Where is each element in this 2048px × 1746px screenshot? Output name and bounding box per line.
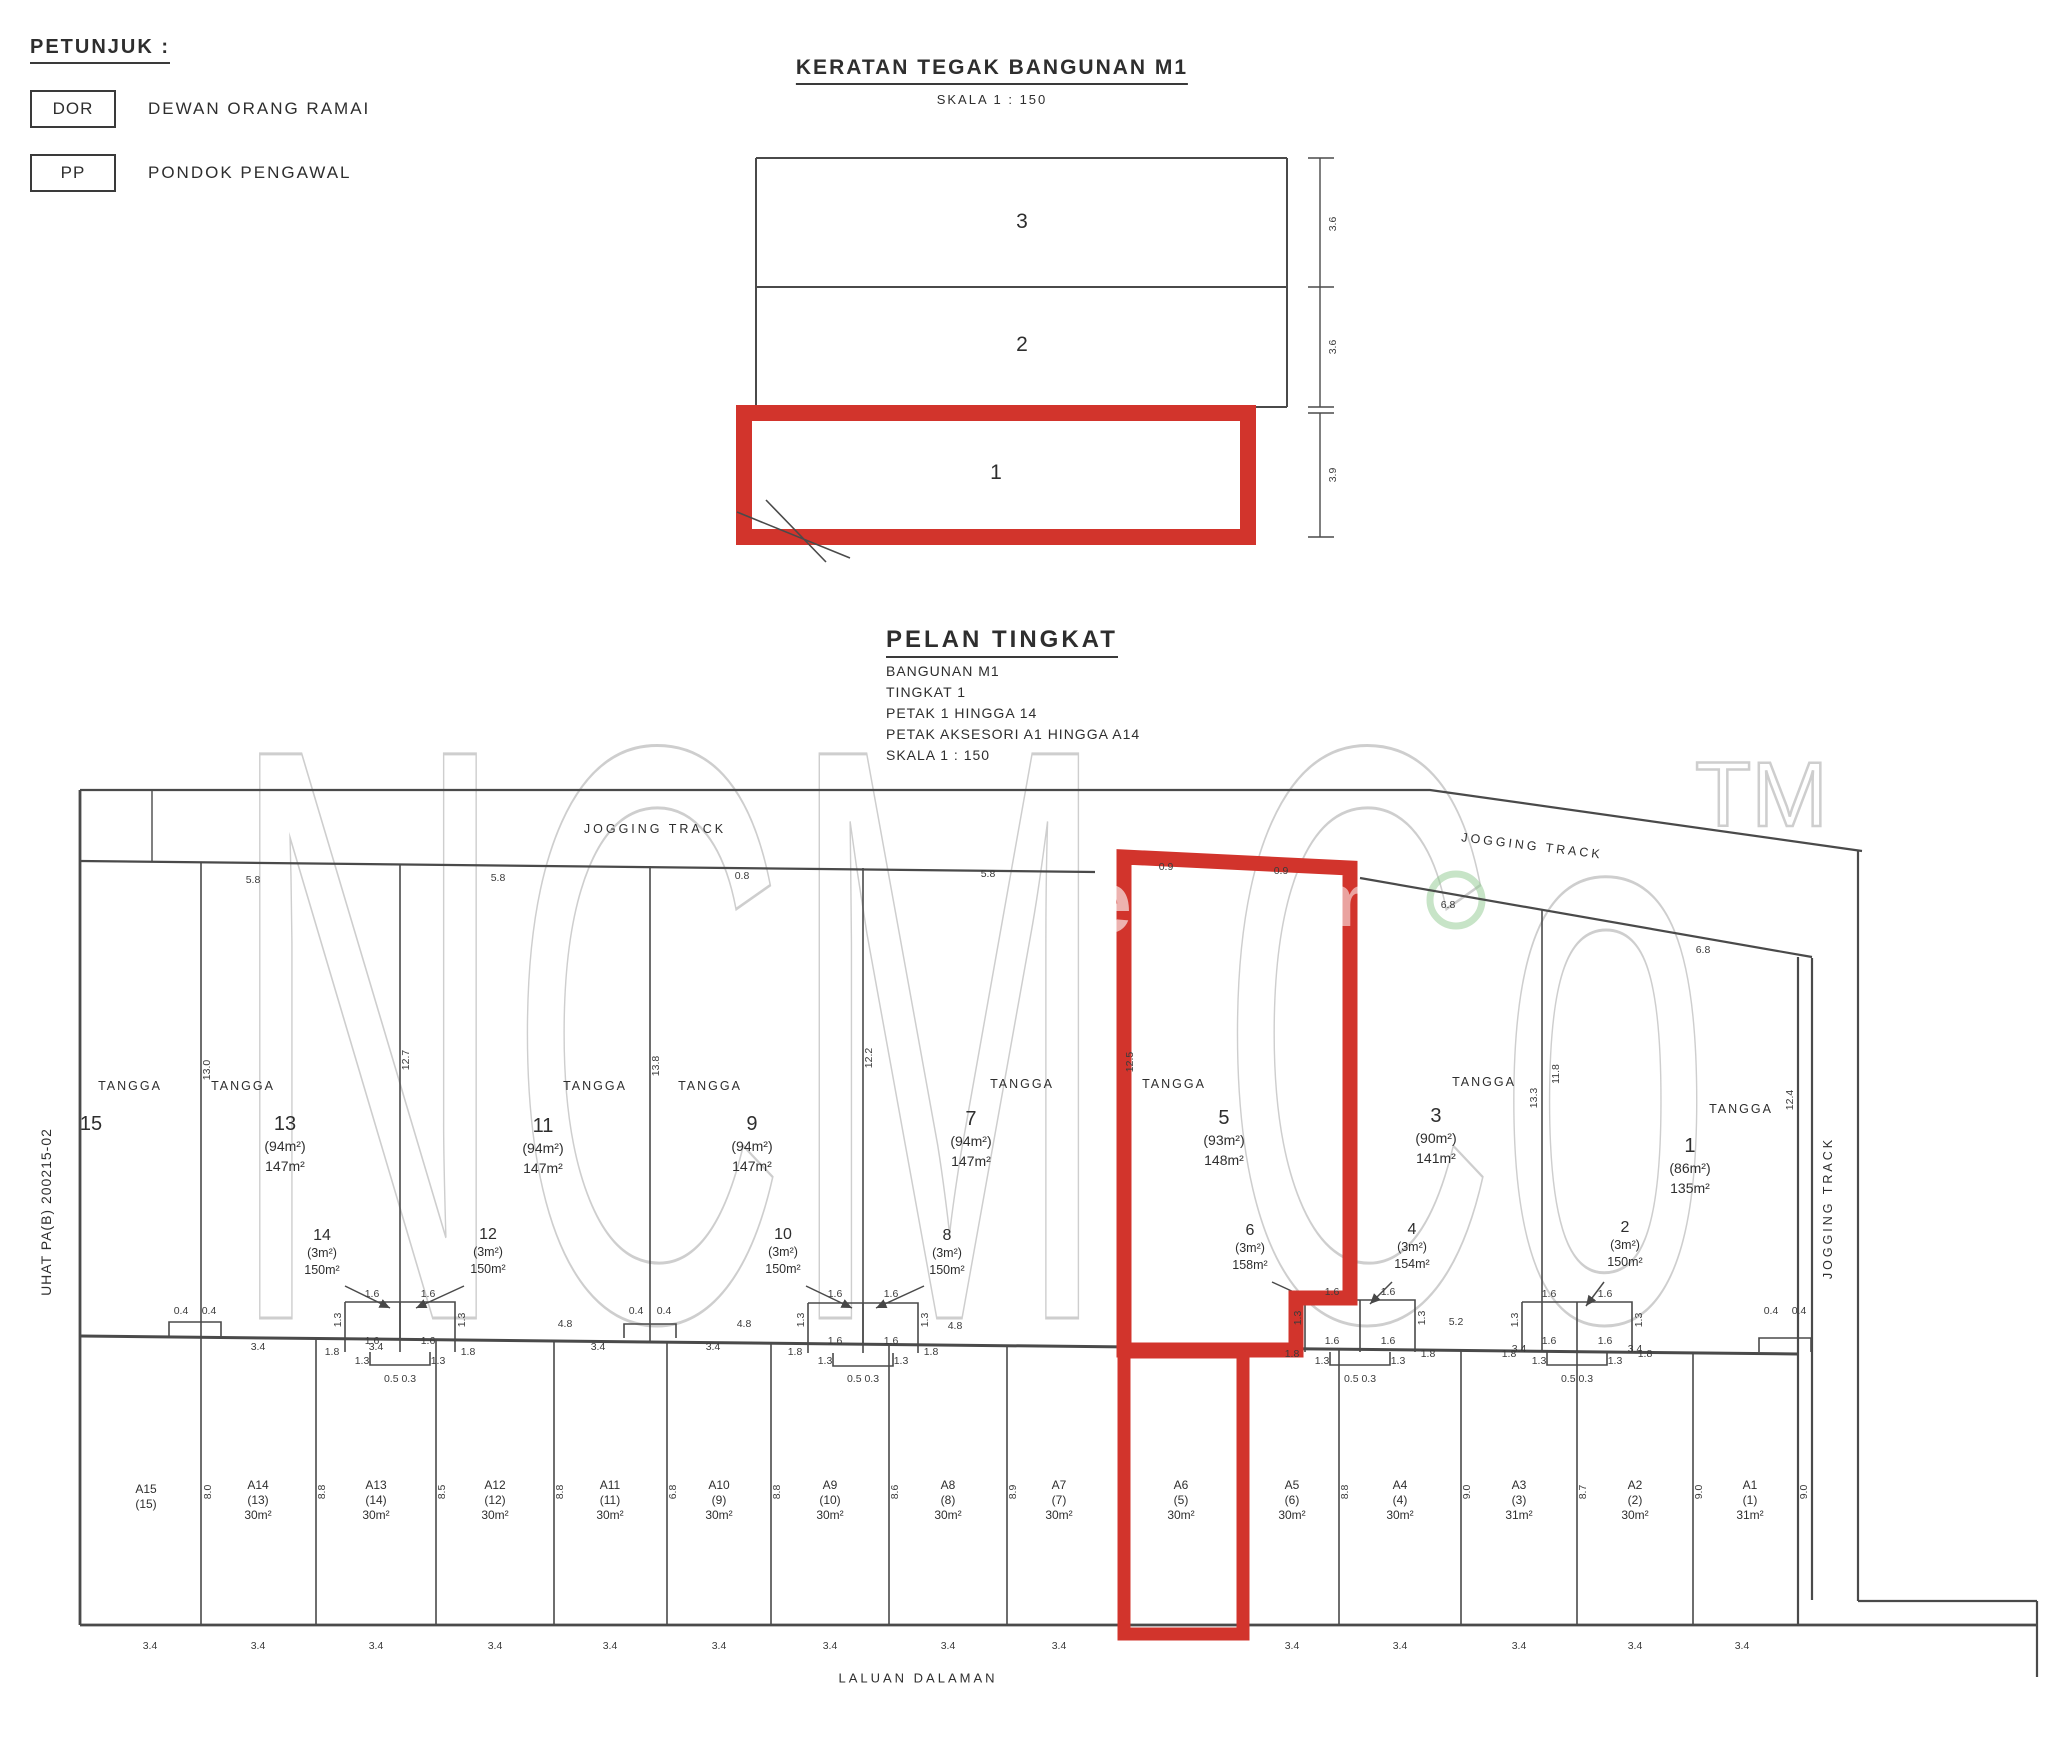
plan-subtitle-line: TINGKAT 1 <box>886 684 1140 700</box>
watermark-fragment-m: m <box>1312 859 1378 942</box>
legend-code-pp: PP <box>30 154 116 192</box>
legend-label-dor: DEWAN ORANG RAMAI <box>148 99 370 119</box>
plan-subtitle-line: PETAK AKSESORI A1 HINGGA A14 <box>886 726 1140 742</box>
legend-row-pp: PP PONDOK PENGAWAL <box>30 154 370 192</box>
drawing-linework: NCM Co TM <box>0 0 2048 1746</box>
plan-heading: PELAN TINGKAT BANGUNAN M1 TINGKAT 1 PETA… <box>886 626 1140 763</box>
jogging-track-label-left: JOGGING TRACK <box>584 822 726 836</box>
section-scale: SKALA 1 : 150 <box>796 92 1188 107</box>
legend-label-pp: PONDOK PENGAWAL <box>148 163 352 183</box>
section-heading: KERATAN TEGAK BANGUNAN M1 SKALA 1 : 150 <box>796 56 1188 107</box>
legend-code-dor: DOR <box>30 90 116 128</box>
plan-subtitle-line: PETAK 1 HINGGA 14 <box>886 705 1140 721</box>
plan-subtitle-line: BANGUNAN M1 <box>886 663 1140 679</box>
section-title: KERATAN TEGAK BANGUNAN M1 <box>796 56 1188 85</box>
plan-title: PELAN TINGKAT <box>886 626 1118 658</box>
reference-note: UHAT PA(B) 200215-02 <box>38 1128 54 1296</box>
laluan-dalaman-label: LALUAN DALAMAN <box>838 1671 997 1686</box>
jogging-track-label-side: JOGGING TRACK <box>1821 1137 1835 1279</box>
strata-plan-document: NCM Co TM <box>0 0 2048 1746</box>
legend-title: PETUNJUK : <box>30 36 170 64</box>
legend-row-dor: DOR DEWAN ORANG RAMAI <box>30 90 370 128</box>
watermark-fragment-e: e <box>1083 852 1132 951</box>
legend: PETUNJUK : DOR DEWAN ORANG RAMAI PP POND… <box>30 36 370 192</box>
plan-subtitle-line: SKALA 1 : 150 <box>886 747 1140 763</box>
section-highlight-floor1 <box>744 413 1248 537</box>
